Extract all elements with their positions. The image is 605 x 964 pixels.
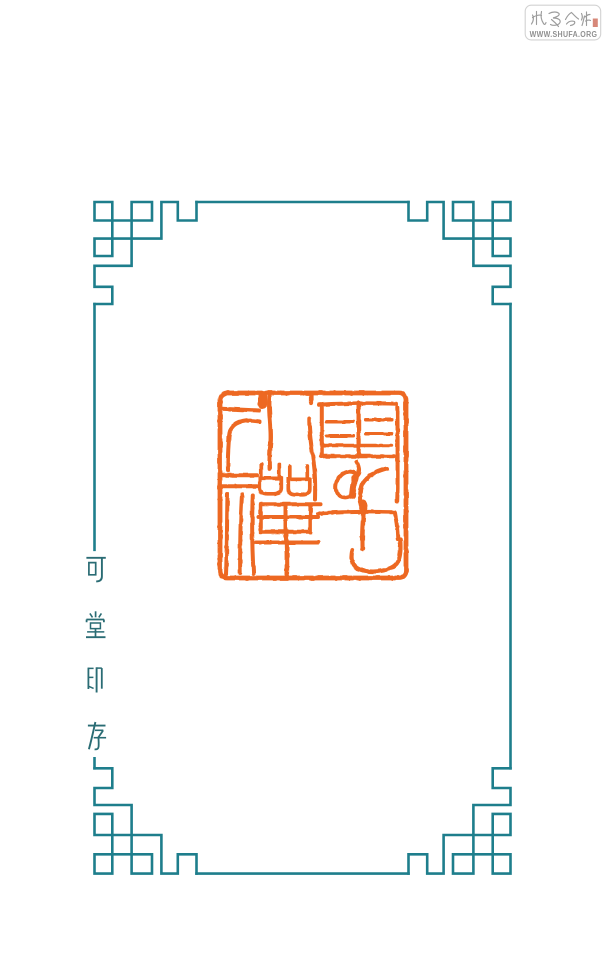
svg-text:WWW.SHUFA.ORG: WWW.SHUFA.ORG — [530, 29, 598, 39]
